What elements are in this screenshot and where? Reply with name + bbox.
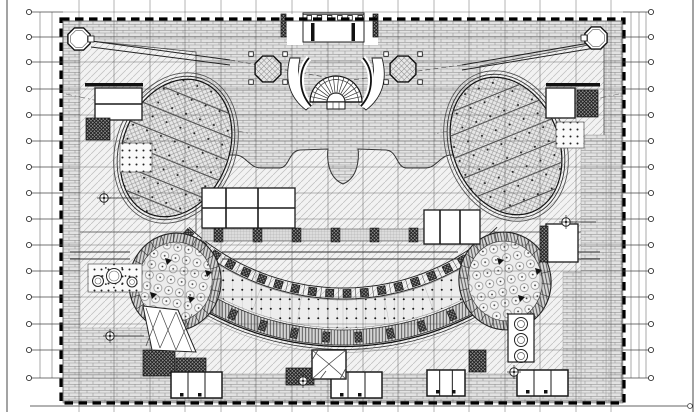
- floor-plan-sheet: [0, 0, 700, 412]
- floor-plan-svg: [0, 0, 700, 412]
